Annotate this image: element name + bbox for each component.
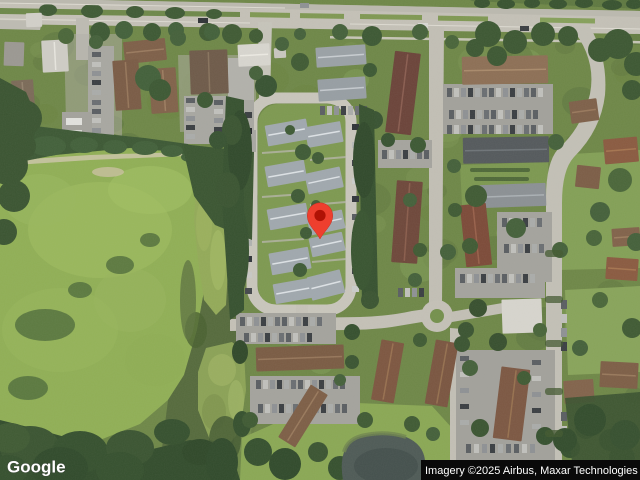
- svg-text:Google: Google: [7, 458, 66, 477]
- svg-text:Imagery ©2025 Airbus, Maxar Te: Imagery ©2025 Airbus, Maxar Technologies: [425, 465, 638, 477]
